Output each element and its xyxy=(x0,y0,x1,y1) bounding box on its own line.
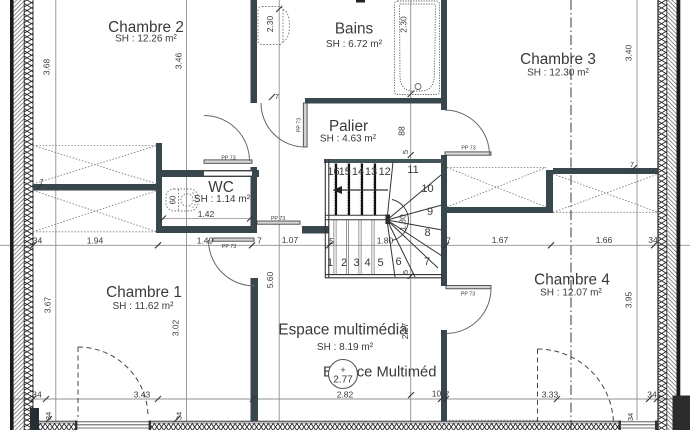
svg-text:SH : 12.30 m²: SH : 12.30 m² xyxy=(527,68,589,79)
svg-text:1.94: 1.94 xyxy=(87,236,104,246)
svg-text:2: 2 xyxy=(341,257,347,269)
svg-text:SH : 12.07 m²: SH : 12.07 m² xyxy=(540,288,602,299)
svg-text:SH : 12.26 m²: SH : 12.26 m² xyxy=(115,34,177,45)
svg-text:SH : 6.72 m²: SH : 6.72 m² xyxy=(326,39,383,50)
svg-text:4: 4 xyxy=(364,257,370,269)
svg-text:12: 12 xyxy=(379,166,391,178)
svg-text:3.33: 3.33 xyxy=(542,390,559,400)
svg-text:3.95: 3.95 xyxy=(624,291,634,308)
svg-text:34: 34 xyxy=(175,412,184,420)
svg-text:5: 5 xyxy=(401,150,410,154)
svg-text:SH : 8.19 m²: SH : 8.19 m² xyxy=(317,342,374,353)
svg-text:60: 60 xyxy=(168,195,177,204)
svg-text:+: + xyxy=(340,365,345,375)
svg-text:2.30: 2.30 xyxy=(399,16,409,33)
svg-text:1.80: 1.80 xyxy=(377,236,394,246)
svg-text:3.68: 3.68 xyxy=(42,58,52,75)
svg-text:1.49: 1.49 xyxy=(197,236,214,246)
svg-text:5: 5 xyxy=(377,257,383,269)
svg-text:PP 73: PP 73 xyxy=(297,118,303,132)
svg-text:Palier: Palier xyxy=(329,118,368,135)
svg-text:3: 3 xyxy=(353,257,359,269)
svg-text:1.66: 1.66 xyxy=(596,235,613,245)
svg-text:34: 34 xyxy=(626,413,635,421)
svg-text:7: 7 xyxy=(424,256,430,268)
svg-text:5: 5 xyxy=(401,270,410,274)
svg-text:7: 7 xyxy=(275,92,279,101)
svg-text:Chambre 4: Chambre 4 xyxy=(534,272,610,289)
svg-text:1.67: 1.67 xyxy=(492,235,509,245)
svg-text:Chambre 1: Chambre 1 xyxy=(106,284,182,301)
svg-text:10: 10 xyxy=(421,183,433,195)
svg-text:PP 73: PP 73 xyxy=(221,155,235,161)
svg-text:SH : 11.62 m²: SH : 11.62 m² xyxy=(113,301,175,312)
svg-text:14: 14 xyxy=(352,166,364,178)
svg-text:2.77: 2.77 xyxy=(333,375,353,386)
svg-text:3.02: 3.02 xyxy=(171,319,181,336)
svg-text:11: 11 xyxy=(407,164,418,176)
svg-text:1: 1 xyxy=(327,257,333,269)
svg-text:34: 34 xyxy=(647,390,657,400)
svg-text:1.07: 1.07 xyxy=(282,235,299,245)
svg-text:SH : 1.14 m²: SH : 1.14 m² xyxy=(194,194,251,205)
svg-text:1.80: 1.80 xyxy=(398,214,408,231)
svg-text:6: 6 xyxy=(395,256,401,268)
svg-text:SH : 4.63 m²: SH : 4.63 m² xyxy=(320,134,377,145)
svg-text:15: 15 xyxy=(339,166,351,178)
svg-text:88: 88 xyxy=(397,126,407,136)
svg-text:5.60: 5.60 xyxy=(265,271,275,288)
svg-text:8: 8 xyxy=(424,227,430,239)
svg-text:10: 10 xyxy=(432,389,442,399)
svg-text:7: 7 xyxy=(257,236,262,246)
svg-text:Espace multimédia: Espace multimédia xyxy=(278,322,408,339)
svg-text:2.27: 2.27 xyxy=(400,322,410,339)
svg-text:Bains: Bains xyxy=(335,21,374,38)
svg-text:1.42: 1.42 xyxy=(198,209,215,219)
svg-text:3.67: 3.67 xyxy=(43,296,53,313)
svg-text:PP 73: PP 73 xyxy=(461,292,475,298)
svg-text:3.40: 3.40 xyxy=(624,44,634,61)
svg-text:2.82: 2.82 xyxy=(337,390,354,400)
svg-text:PP 73: PP 73 xyxy=(271,216,285,222)
svg-text:PP 73: PP 73 xyxy=(461,146,475,152)
svg-text:3.43: 3.43 xyxy=(134,390,151,400)
svg-text:13: 13 xyxy=(365,166,377,178)
svg-text:3.46: 3.46 xyxy=(174,52,184,69)
svg-text:PP 73: PP 73 xyxy=(222,244,236,250)
svg-text:9: 9 xyxy=(427,206,433,218)
svg-text:Chambre 3: Chambre 3 xyxy=(520,51,596,68)
svg-text:2.30: 2.30 xyxy=(265,15,275,32)
svg-text:7: 7 xyxy=(630,160,634,169)
